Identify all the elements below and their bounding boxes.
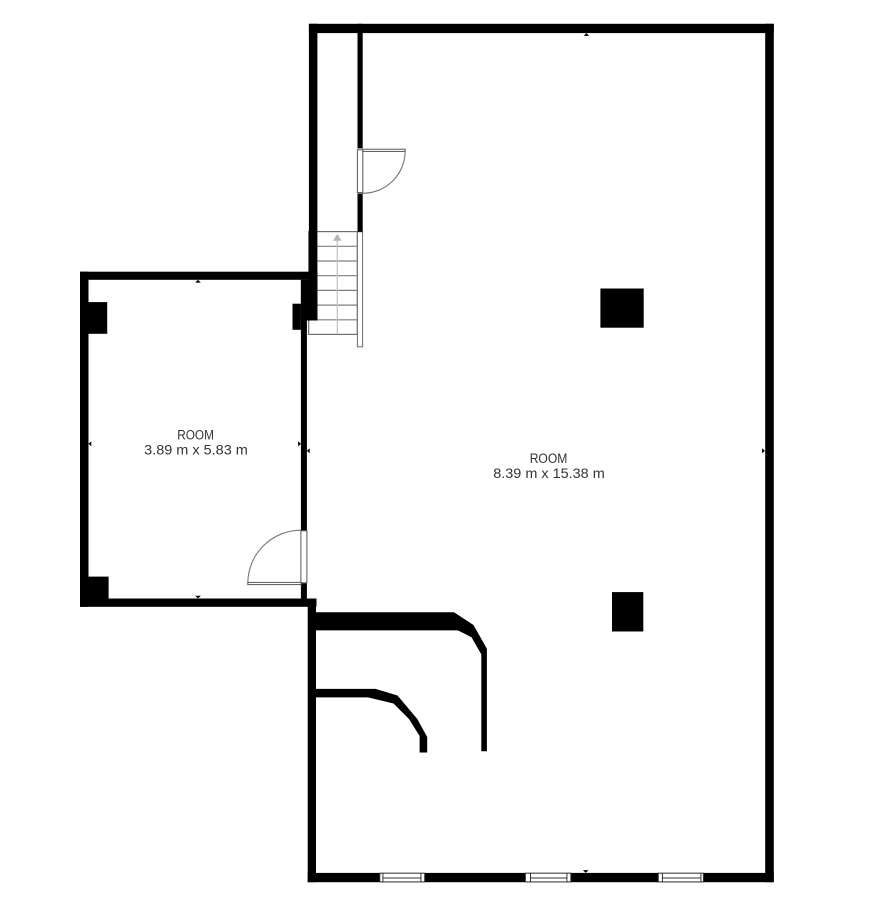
svg-text:8.39 m x 15.38 m: 8.39 m x 15.38 m: [493, 466, 605, 482]
svg-text:ROOM: ROOM: [530, 451, 568, 467]
svg-text:ROOM: ROOM: [177, 427, 214, 443]
svg-text:3.89 m x 5.83 m: 3.89 m x 5.83 m: [144, 442, 248, 458]
